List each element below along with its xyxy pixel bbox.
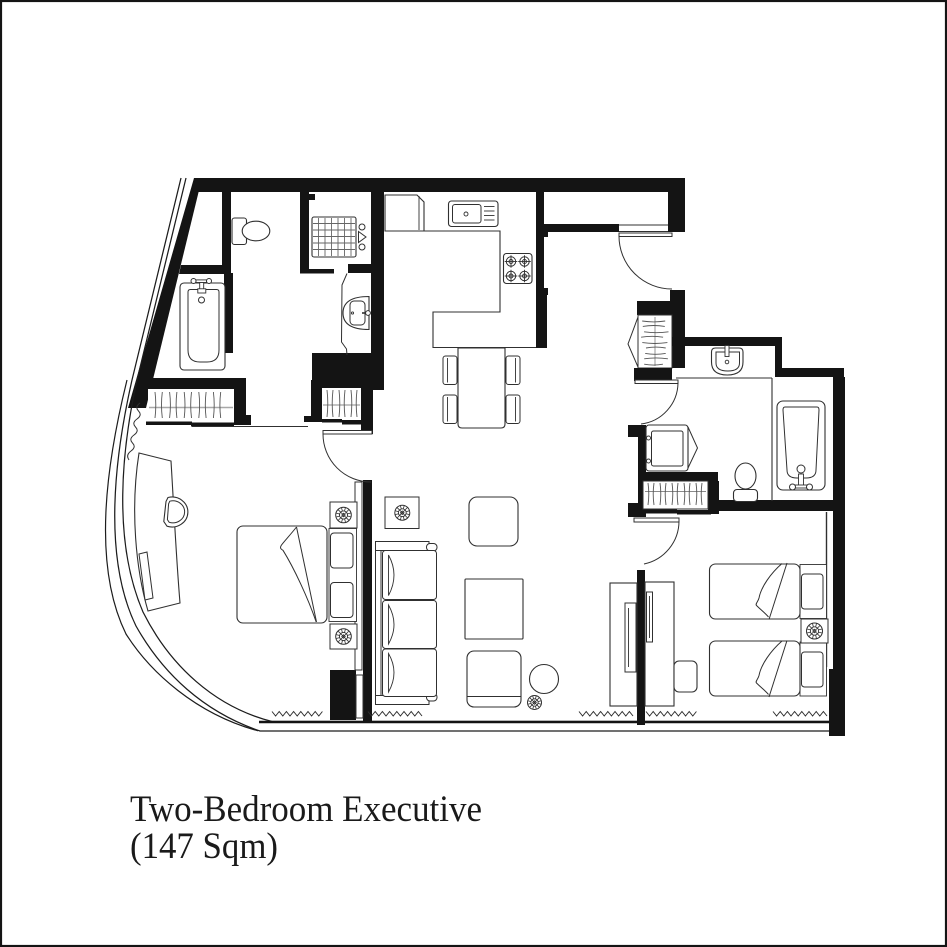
svg-text:Two-Bedroom Executive: Two-Bedroom Executive — [130, 789, 482, 830]
svg-text:(147 Sqm): (147 Sqm) — [130, 826, 278, 867]
